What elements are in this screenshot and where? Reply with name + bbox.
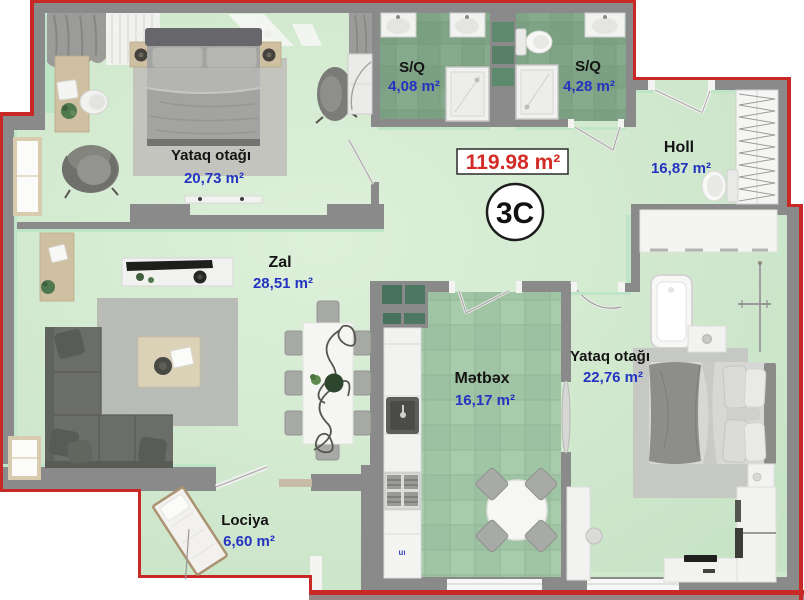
svg-text:3C: 3C	[496, 197, 534, 230]
svg-text:uı: uı	[398, 548, 405, 557]
svg-text:Mətbəx: Mətbəx	[454, 370, 509, 387]
svg-text:22,76 m²: 22,76 m²	[583, 369, 643, 386]
svg-text:16,87 m²: 16,87 m²	[651, 160, 711, 177]
svg-text:Yataq otağı: Yataq otağı	[570, 348, 650, 365]
svg-text:119.98 m²: 119.98 m²	[466, 151, 561, 174]
svg-text:6,60 m²: 6,60 m²	[223, 533, 275, 550]
svg-text:Lociya: Lociya	[221, 512, 269, 529]
svg-text:28,51 m²: 28,51 m²	[253, 275, 313, 292]
svg-text:4,28 m²: 4,28 m²	[563, 78, 615, 95]
svg-text:16,17 m²: 16,17 m²	[455, 392, 515, 409]
svg-text:S/Q: S/Q	[399, 59, 425, 76]
svg-text:4,08 m²: 4,08 m²	[388, 78, 440, 95]
svg-text:Holl: Holl	[664, 139, 694, 156]
svg-text:20,73 m²: 20,73 m²	[184, 170, 244, 187]
svg-text:Yataq otağı: Yataq otağı	[171, 147, 251, 164]
svg-text:Zal: Zal	[268, 254, 291, 271]
svg-text:S/Q: S/Q	[575, 58, 601, 75]
